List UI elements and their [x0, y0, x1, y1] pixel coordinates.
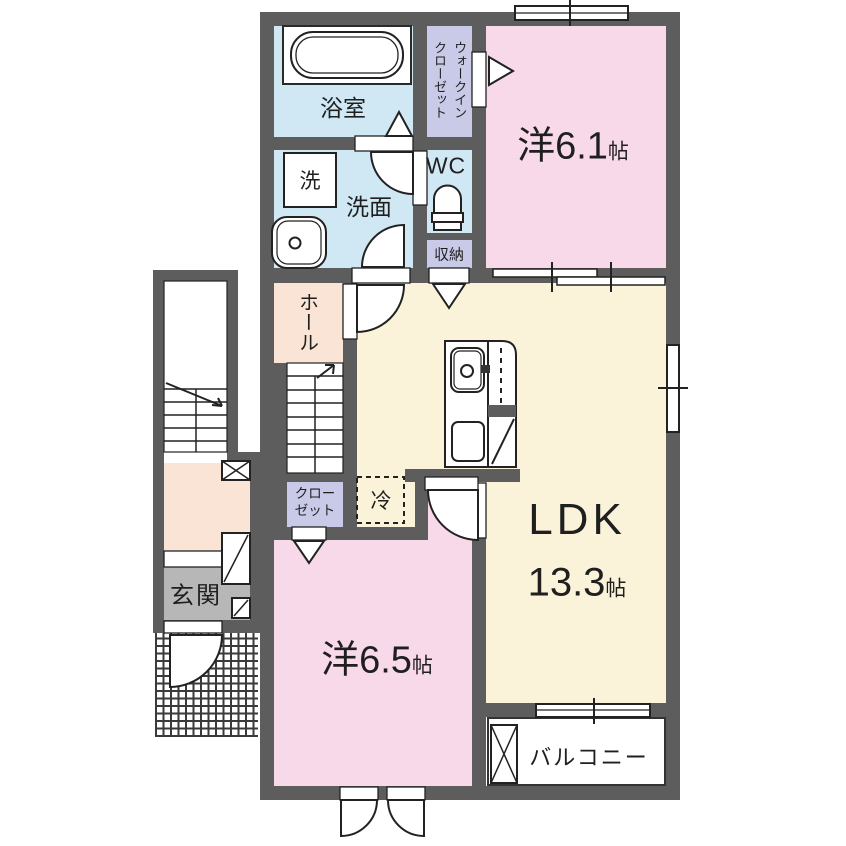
- label-ldk: LDK: [528, 495, 626, 545]
- shoe-cabinet: [164, 551, 222, 567]
- entrance-door-arc: [170, 635, 222, 687]
- bathtub: [283, 26, 411, 84]
- washroom-door: [352, 225, 410, 283]
- label-washer: 洗: [300, 165, 321, 195]
- storage-folding-door: [429, 268, 469, 308]
- label-balcony: バルコニー: [529, 740, 649, 772]
- wic-door-arrow-icon: [472, 52, 513, 107]
- kitchen-stove: [452, 422, 484, 461]
- label-hall: ホール: [293, 292, 322, 352]
- closet-folding-door: [292, 527, 326, 563]
- western2-double-doors: [340, 787, 425, 836]
- ldk-western2-door: [425, 477, 486, 540]
- window-right: [658, 345, 688, 432]
- window-top: [515, 0, 628, 26]
- label-wic: ウォークイン クローゼット: [429, 41, 469, 119]
- label-western-1: 洋6.1帖: [517, 115, 629, 170]
- washbasin: [272, 217, 326, 268]
- staircase-annex: [164, 281, 227, 452]
- label-western-2: 洋6.5帖: [321, 629, 433, 684]
- annex-shaft-box: [222, 461, 250, 480]
- floor-plan: 浴室 洗 洗面 WC ウォークイン クローゼット 収納 洋6.1帖 ホール クロ…: [0, 0, 846, 846]
- label-storage: 収納: [434, 244, 464, 265]
- staircase-main: [287, 363, 343, 473]
- kitchen-counter: [445, 341, 516, 467]
- hall-door: [343, 284, 404, 339]
- toilet: [432, 186, 463, 231]
- sliding-door-western1: [493, 262, 665, 292]
- window-balcony: [536, 698, 650, 724]
- label-closet: クロー ゼット: [289, 486, 341, 520]
- label-refrigerator: 冷: [371, 485, 392, 515]
- balcony-washer-pan: [491, 725, 517, 783]
- label-entrance: 玄関: [170, 576, 222, 611]
- kitchen-faucet: [461, 365, 473, 377]
- label-wc: WC: [426, 153, 466, 180]
- label-washroom: 洗面: [346, 188, 392, 222]
- fixtures-layer: [0, 0, 846, 846]
- label-bathroom: 浴室: [320, 89, 366, 123]
- label-ldk-size: 13.3帖: [528, 561, 627, 606]
